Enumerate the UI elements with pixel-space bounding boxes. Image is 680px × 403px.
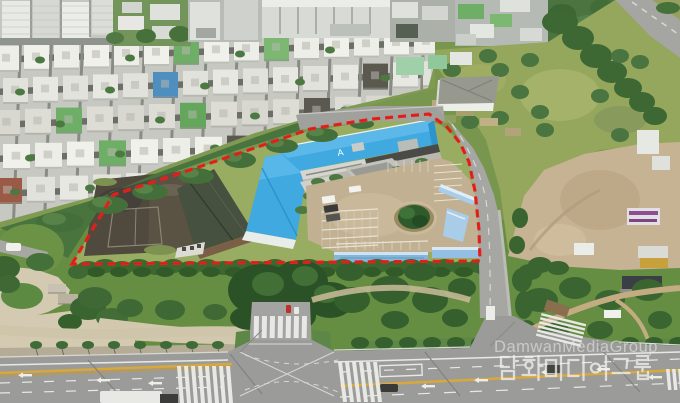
- svg-text:DamwanMediaGroup: DamwanMediaGroup: [494, 338, 658, 356]
